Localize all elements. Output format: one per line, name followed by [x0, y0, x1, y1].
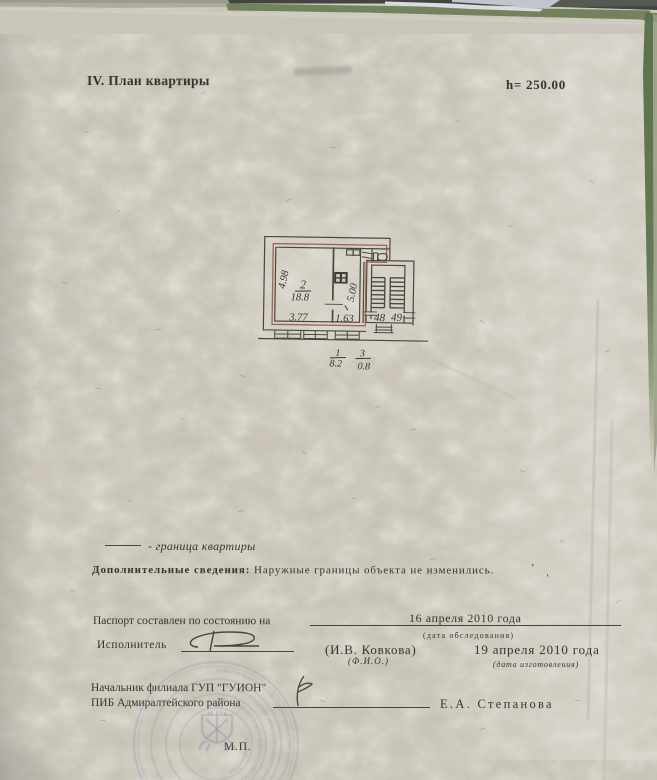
- svg-text:48: 48: [374, 312, 386, 324]
- svg-text:3: 3: [359, 348, 365, 359]
- svg-text:3.77: 3.77: [288, 312, 308, 323]
- svg-text:2: 2: [300, 277, 306, 291]
- svg-text:0.8: 0.8: [357, 361, 370, 372]
- svg-text:4.98: 4.98: [277, 269, 292, 290]
- svg-text:8.2: 8.2: [329, 358, 342, 369]
- svg-text:5.00: 5.00: [346, 282, 361, 303]
- svg-text:1.63: 1.63: [335, 313, 354, 324]
- svg-text:18.8: 18.8: [291, 292, 310, 303]
- svg-text:49: 49: [391, 312, 403, 324]
